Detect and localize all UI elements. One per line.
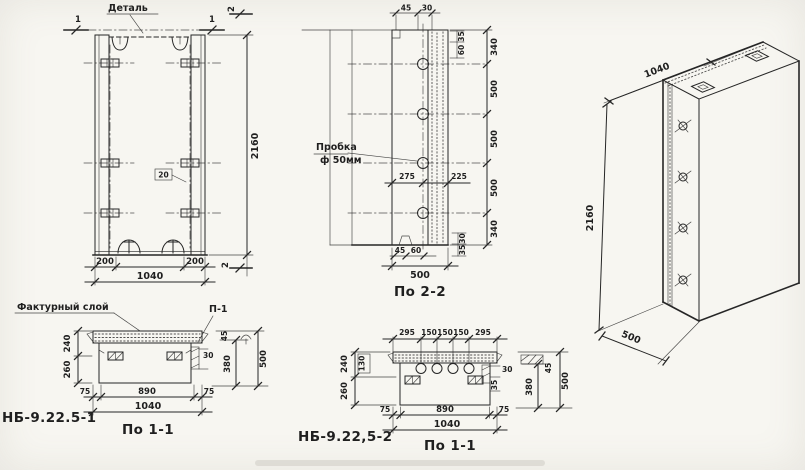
dim-label-150: 150 [437,328,453,337]
edge-plate: 30 [191,347,213,369]
dim-label-35: 35 [457,31,466,41]
top-recess [692,82,715,92]
bottom-anchor [399,236,412,245]
dim-label-380: 380 [525,378,535,396]
cut-mark-1-right: 1 [209,15,215,25]
dim-label-30: 30 [422,4,432,13]
caption-po-1-1-a: По 1-1 [122,422,174,438]
caption-po-2-2: По 2-2 [394,284,446,300]
dim-label-30: 30 [502,365,512,374]
dim-label-75: 75 [80,387,90,396]
caption-po-1-1-b: По 1-1 [424,438,476,454]
s22-dims-side-top: 35 60 [450,31,466,58]
dim-label-500: 500 [561,372,571,390]
anchor-plate [468,376,483,384]
part-number-2: НБ-9.22,5-2 [298,429,392,445]
dim-label-130-boxed: 130 [358,356,367,372]
dim-label-45: 45 [544,363,553,373]
dim-label-225: 225 [451,172,467,181]
s11b-dims-bottom: 75 890 75 1040 [380,405,509,434]
dim-label-500: 500 [259,350,269,368]
facing-layer-label: Фактурный слой [17,302,109,313]
front-dim-height: 2160 [209,32,261,259]
dim-label-30: 30 [458,233,467,243]
top-recess [746,51,769,61]
dim-label-500: 500 [490,130,500,148]
plate-tag-label: 20 [158,171,168,180]
dim-label-150: 150 [421,328,437,337]
dim-label-275: 275 [399,172,415,181]
dim-label-35: 35 [458,245,467,255]
channel-hole [464,364,474,374]
dim-label-2160: 2160 [250,132,261,159]
dim-label-60: 60 [411,246,421,255]
dim-label-1040: 1040 [434,419,461,430]
plug-label: Пробка [316,142,357,153]
bottom-anchor [162,240,184,253]
dim-label-45: 45 [395,246,405,255]
dim-label-60: 60 [457,45,466,55]
dim-label-150: 150 [453,328,469,337]
anchor-plate [405,376,420,384]
dim-label-30: 30 [203,351,213,360]
dim-label-500: 500 [410,270,430,281]
s22-dims-top: 45 30 [390,4,440,31]
dim-label-295: 295 [399,328,415,337]
iso-plug [675,120,691,132]
detail-label: Деталь [108,3,148,14]
cut-mark-2-bottom: 2 [221,262,231,268]
dim-label-340: 340 [490,220,500,238]
p1-detail-1: 45 380 500 [212,328,269,390]
isometric-view: 1040 2160 500 [585,42,799,365]
cut-mark-2-top: 2 [227,6,237,12]
scan-smudge [255,460,545,466]
dim-label-240: 240 [340,355,350,373]
plug-dia-label: ф 50мм [320,155,361,166]
dim-label-890: 890 [436,405,454,415]
cut-mark-1-left: 1 [75,15,81,25]
drawing-canvas: 20 Деталь 1 1 2 2 [0,0,805,470]
dim-label-240: 240 [63,335,73,353]
dim-label-75: 75 [204,387,214,396]
dim-label-75: 75 [499,405,509,414]
dim-label-500: 500 [490,179,500,197]
part-number-1: НБ-9.22.5-1 [2,410,96,426]
dim-label-890: 890 [138,387,156,397]
anchor-plate [167,352,182,360]
dim-label-380: 380 [223,355,233,373]
s22-dims-bottom: 45 60 30 35 500 [382,233,467,281]
dim-label-2160: 2160 [585,204,596,231]
p1-detail-2: 45 380 500 [516,349,572,412]
s11a-dims-left: 240 260 [63,328,92,387]
dim-label-75: 75 [380,405,390,414]
dim-label-340: 340 [490,38,500,56]
s22-dims-right: 340 500 500 500 340 [450,27,500,249]
section-1-1-view-type1: 30 Фактурный слой П-1 240 260 [2,302,269,438]
iso-plug [675,222,691,234]
dim-label-200-left: 200 [96,257,114,267]
front-dims-bottom: 200 200 1040 [85,257,215,286]
plate-tag: 20 [155,169,186,182]
dim-label-260: 260 [340,382,350,400]
channel-hole [416,364,426,374]
front-elevation-view: 20 Деталь 1 1 2 2 [64,3,261,286]
dim-label-45: 45 [220,331,229,341]
s11b-dims-left: 240 260 130 [340,349,396,409]
edge-plate: 30 35 [482,365,512,391]
dim-label-200-right: 200 [186,257,204,267]
anchor-plate [108,352,123,360]
top-loop [172,37,188,50]
iso-plug [675,274,691,286]
dim-label-1040: 1040 [135,401,162,412]
channel-hole [432,364,442,374]
dim-label-35: 35 [490,380,499,390]
section-2-2-view: Пробка ф 50мм 45 30 35 60 [302,4,500,301]
dim-label-500: 500 [490,80,500,98]
top-loop [112,37,128,50]
p1-detail-ref: П-1 [209,304,228,315]
drawing-sheet: 20 Деталь 1 1 2 2 [0,0,805,470]
dim-label-45: 45 [401,4,411,13]
iso-dim-height: 2160 [585,101,611,333]
iso-plug [675,171,691,183]
section-1-1-view-type2: 295 150 150 150 295 [298,328,572,454]
dim-label-295: 295 [475,328,491,337]
dim-label-260: 260 [63,361,73,379]
channel-hole [448,364,458,374]
section-cut-1-marks: 1 1 [64,15,224,34]
dim-label-1040: 1040 [137,271,164,282]
s11a-dims-bottom: 75 890 75 1040 [80,385,214,416]
bottom-anchor [118,240,140,253]
